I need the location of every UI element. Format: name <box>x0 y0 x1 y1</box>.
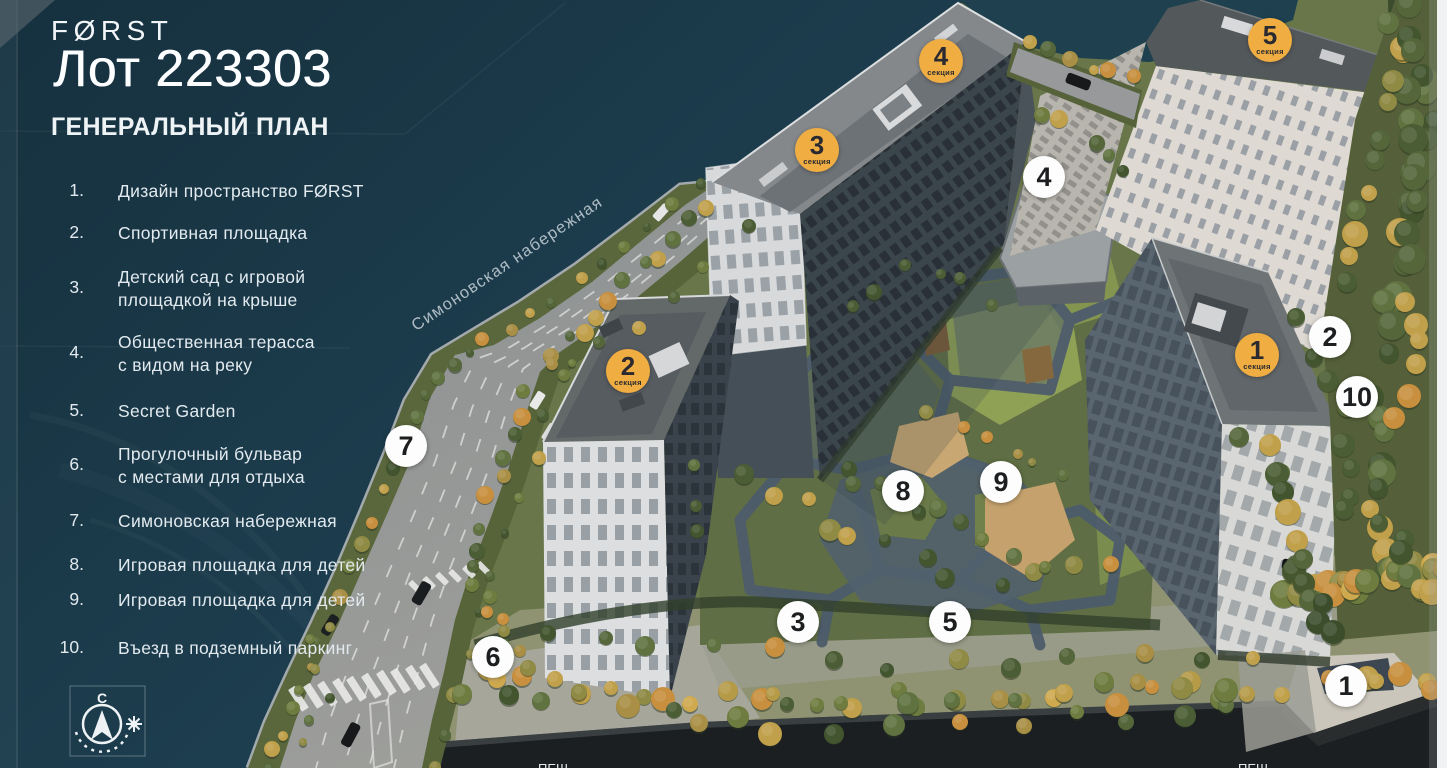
svg-text:ПЕШ: ПЕШ <box>1238 761 1268 768</box>
svg-text:С: С <box>97 690 107 706</box>
svg-text:ПЕШ: ПЕШ <box>538 761 568 768</box>
